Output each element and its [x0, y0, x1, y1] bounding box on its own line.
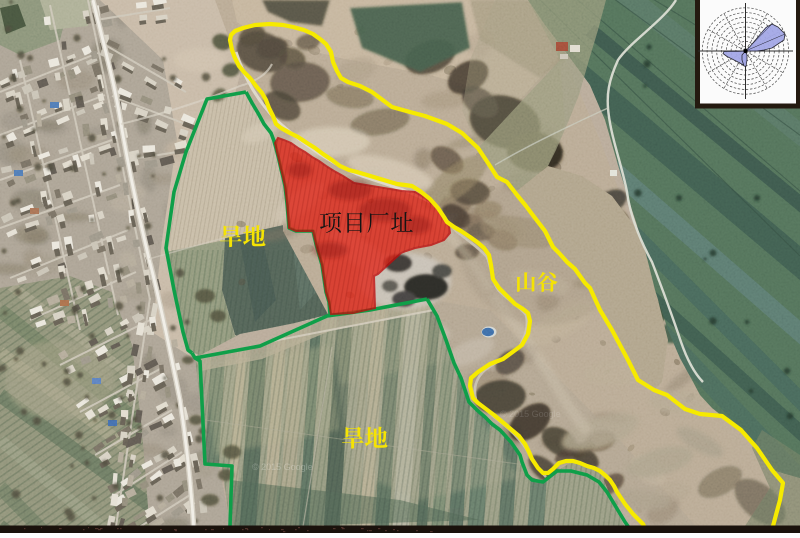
svg-text:© 2015 Google: © 2015 Google — [252, 462, 313, 472]
svg-text:© 2015 Google: © 2015 Google — [500, 409, 561, 419]
